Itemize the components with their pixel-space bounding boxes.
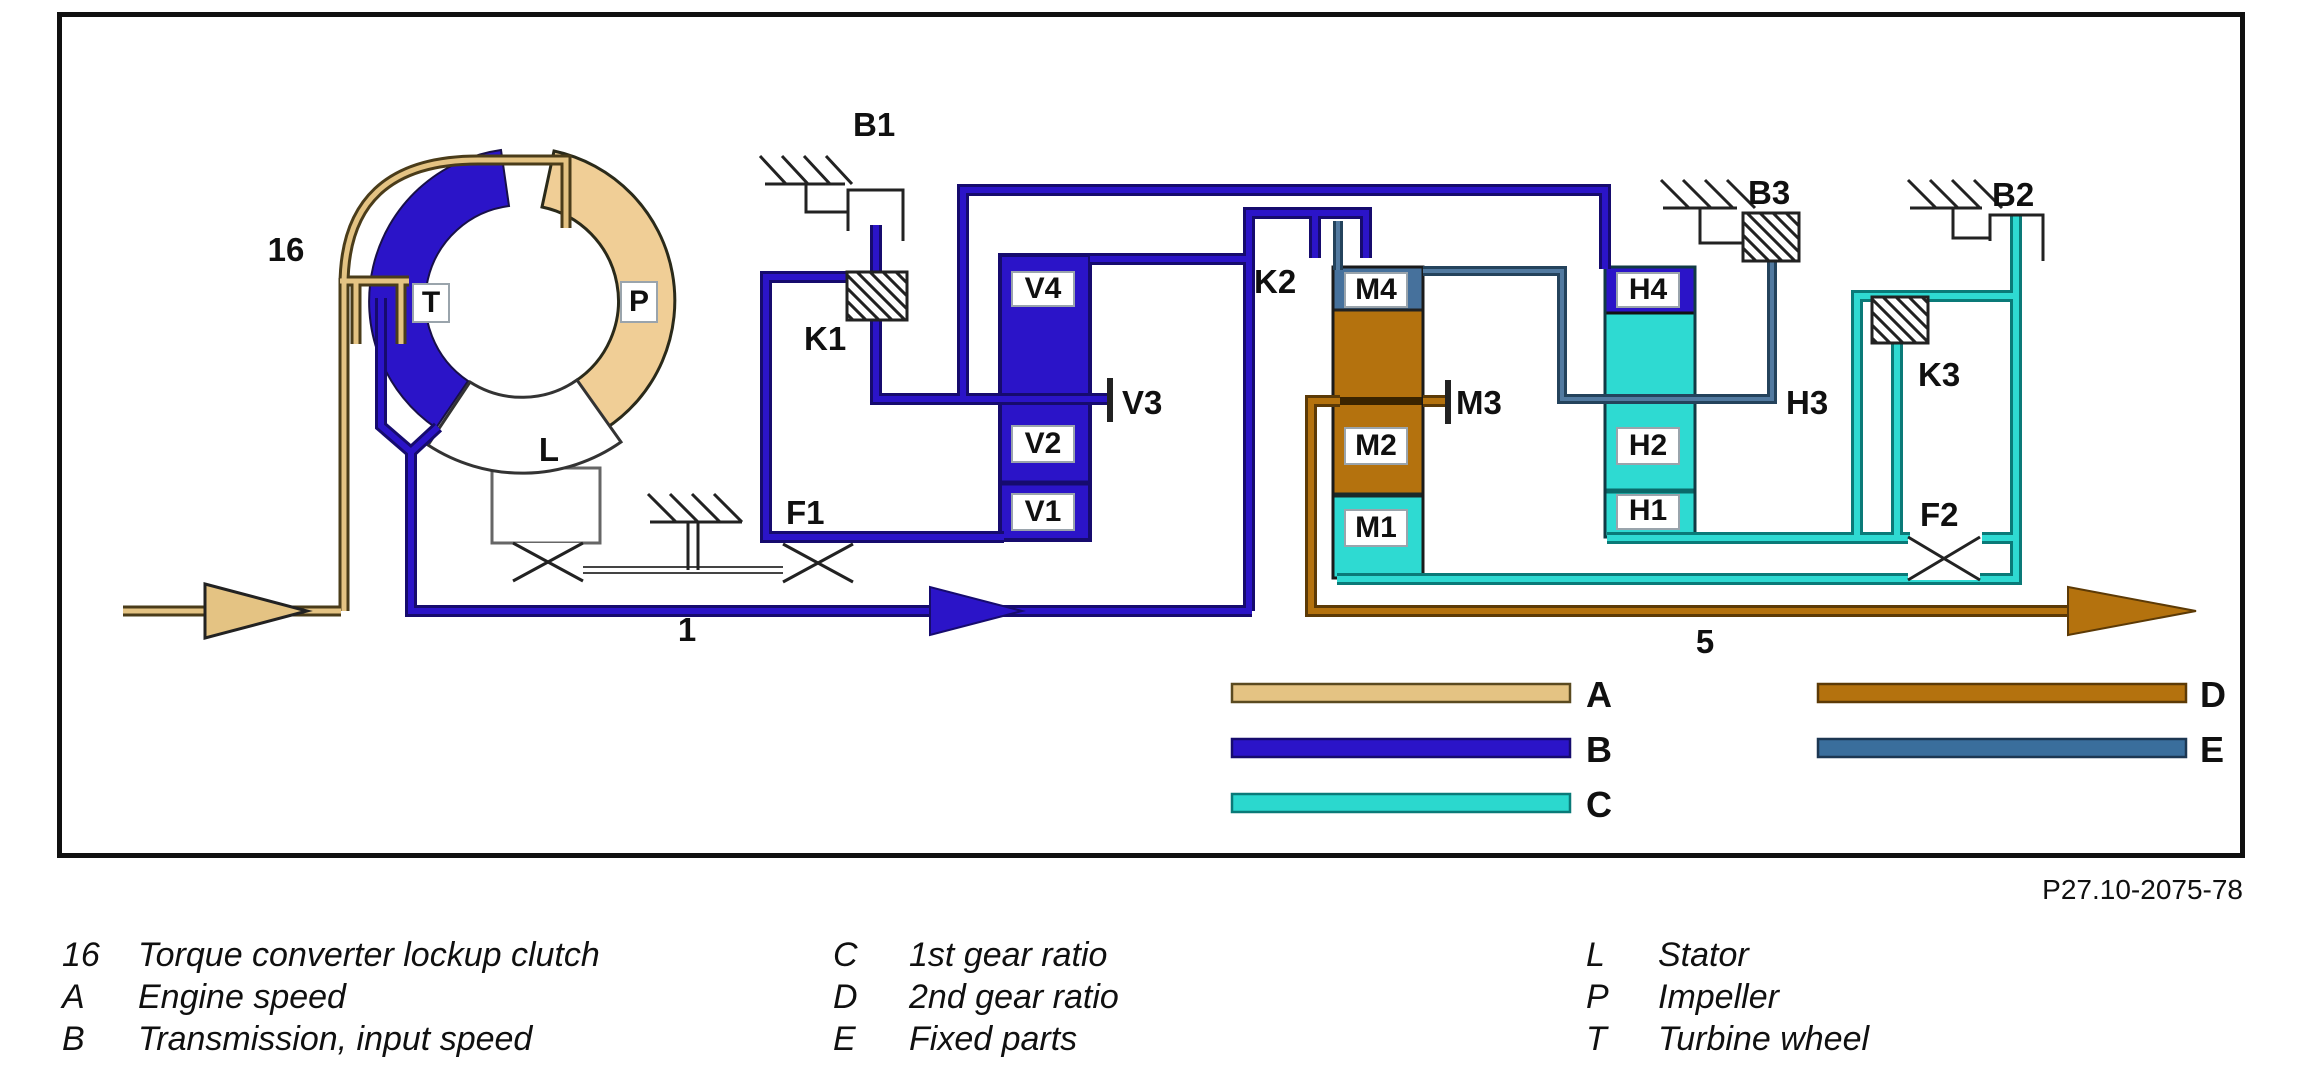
legend-bar-d-label: D bbox=[2200, 674, 2226, 715]
figure-code: P27.10-2075-78 bbox=[1990, 874, 2243, 906]
stator-support bbox=[492, 468, 600, 543]
label-h2: H2 bbox=[1629, 429, 1667, 462]
clutch-k3-pack bbox=[1872, 297, 1928, 343]
brake-b3-pack bbox=[1743, 213, 1799, 261]
legend-column-1: 16Torque converter lockup clutch AEngine… bbox=[62, 936, 600, 1062]
legend-row: C1st gear ratio bbox=[833, 936, 1119, 978]
legend-bar-b bbox=[1232, 739, 1570, 757]
legend-row: TTurbine wheel bbox=[1586, 1020, 1869, 1062]
legend-text: Engine speed bbox=[138, 978, 346, 1016]
legend-bar-c bbox=[1232, 794, 1570, 812]
label-stator: L bbox=[539, 431, 559, 468]
legend-text: Turbine wheel bbox=[1658, 1020, 1869, 1058]
legend-bar-a-label: A bbox=[1586, 674, 1612, 715]
legend-text: Transmission, input speed bbox=[138, 1020, 532, 1058]
legend-row: PImpeller bbox=[1586, 978, 1869, 1020]
legend-bar-a bbox=[1232, 684, 1570, 702]
label-m1: M1 bbox=[1355, 511, 1397, 544]
legend-bar-c-label: C bbox=[1586, 784, 1612, 825]
label-turbine: T bbox=[422, 286, 440, 319]
legend-bar-b-label: B bbox=[1586, 729, 1612, 770]
label-impeller: P bbox=[629, 285, 649, 318]
legend-row: D2nd gear ratio bbox=[833, 978, 1119, 1020]
input-shaft-arrow bbox=[930, 587, 1022, 635]
legend-key: E bbox=[833, 1020, 909, 1059]
legend-column-2: C1st gear ratio D2nd gear ratio EFixed p… bbox=[833, 936, 1119, 1062]
legend-text: Fixed parts bbox=[909, 1020, 1077, 1058]
freewheel-f1-box bbox=[783, 544, 853, 582]
legend-key: T bbox=[1586, 1020, 1658, 1059]
brake-b3-ground bbox=[1661, 180, 1755, 243]
label-h1: H1 bbox=[1629, 494, 1667, 527]
label-shaft-1: 1 bbox=[678, 611, 696, 648]
legend-row: BTransmission, input speed bbox=[62, 1020, 600, 1062]
label-k1: K1 bbox=[804, 320, 846, 357]
legend-bar-d bbox=[1818, 684, 2186, 702]
legend-key: 16 bbox=[62, 936, 138, 975]
label-v4: V4 bbox=[1025, 272, 1062, 305]
legend-bar-e bbox=[1818, 739, 2186, 757]
label-v2: V2 bbox=[1025, 427, 1062, 460]
label-v3: V3 bbox=[1122, 384, 1162, 421]
label-item-16: 16 bbox=[268, 231, 305, 268]
output-shaft-arrow bbox=[2068, 587, 2196, 635]
label-b2: B2 bbox=[1992, 176, 2034, 213]
legend-text: Impeller bbox=[1658, 978, 1779, 1016]
label-f2: F2 bbox=[1920, 496, 1959, 533]
legend-key: A bbox=[62, 978, 138, 1017]
label-m3: M3 bbox=[1456, 384, 1502, 421]
page: T P L 16 1 5 B1 K1 F1 V3 K2 M3 H3 B3 K3 … bbox=[0, 0, 2297, 1071]
label-m4: M4 bbox=[1355, 273, 1397, 306]
label-v1: V1 bbox=[1025, 495, 1062, 528]
legend-row: LStator bbox=[1586, 936, 1869, 978]
clutch-k1-pack bbox=[847, 272, 907, 320]
stator-freewheel-box bbox=[513, 543, 583, 581]
label-m2: M2 bbox=[1355, 429, 1397, 462]
stator-ground-symbol bbox=[648, 494, 742, 570]
freewheel-f2-box bbox=[1908, 537, 1980, 580]
legend-row: EFixed parts bbox=[833, 1020, 1119, 1062]
legend-text: 1st gear ratio bbox=[909, 936, 1107, 974]
legend-text: Torque converter lockup clutch bbox=[138, 936, 600, 974]
transmission-power-flow-diagram: T P L 16 1 5 B1 K1 F1 V3 K2 M3 H3 B3 K3 … bbox=[0, 0, 2297, 1071]
label-h3: H3 bbox=[1786, 384, 1828, 421]
legend-text: 2nd gear ratio bbox=[909, 978, 1119, 1016]
label-shaft-5: 5 bbox=[1696, 623, 1714, 660]
legend-row: AEngine speed bbox=[62, 978, 600, 1020]
legend-key: L bbox=[1586, 936, 1658, 975]
legend-key: B bbox=[62, 1020, 138, 1059]
legend-key: D bbox=[833, 978, 909, 1017]
color-legend: A B C D E bbox=[1232, 674, 2226, 825]
label-k2: K2 bbox=[1254, 263, 1296, 300]
label-b1: B1 bbox=[853, 106, 895, 143]
legend-bar-e-label: E bbox=[2200, 729, 2224, 770]
label-b3: B3 bbox=[1748, 174, 1790, 211]
legend-row: 16Torque converter lockup clutch bbox=[62, 936, 600, 978]
label-h4: H4 bbox=[1629, 273, 1668, 306]
legend-key: C bbox=[833, 936, 909, 975]
label-k3: K3 bbox=[1918, 356, 1960, 393]
legend-text: Stator bbox=[1658, 936, 1749, 974]
engine-input-arrow bbox=[205, 584, 307, 638]
label-f1: F1 bbox=[786, 494, 825, 531]
legend-column-3: LStator PImpeller TTurbine wheel bbox=[1586, 936, 1869, 1062]
legend-key: P bbox=[1586, 978, 1658, 1017]
